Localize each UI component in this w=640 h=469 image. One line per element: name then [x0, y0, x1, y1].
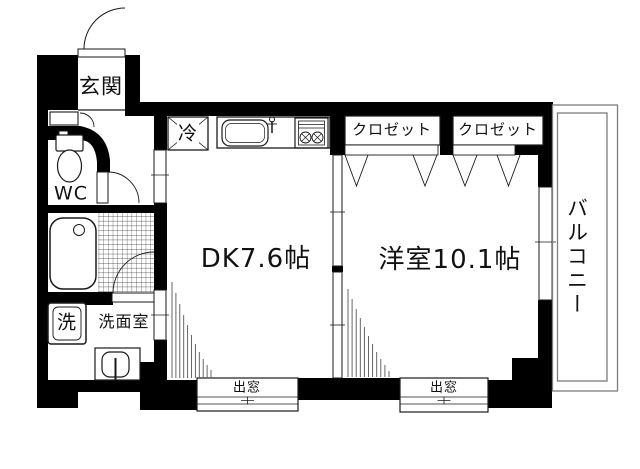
wall-south-mid — [298, 378, 400, 400]
room-label-washroom: 洗面室 — [98, 314, 149, 330]
bathroom-area — [50, 213, 154, 302]
floorplan-canvas: 玄関 WC 冷 クロゼット クロゼット DK7.6帖 洋室10.1帖 バルコニー… — [0, 0, 640, 469]
wall-dk-west-upper — [154, 102, 167, 150]
window-icon-hall — [154, 150, 166, 203]
toilet-icon — [58, 150, 82, 182]
room-label-western-room: 洋室10.1帖 — [379, 247, 522, 273]
wall-partition-joint — [332, 266, 343, 272]
closet-left-track — [345, 145, 438, 155]
window-icon-balcony — [539, 187, 552, 300]
wall-topleft-block — [37, 55, 78, 110]
closet-right-track — [453, 145, 515, 155]
bathtub-icon — [50, 218, 96, 289]
room-label-balcony: バルコニー — [566, 197, 587, 317]
toilet-tank — [56, 135, 83, 151]
floorplan-drawing — [0, 0, 640, 469]
wc-door-leaf — [97, 172, 108, 203]
bay-window-left-label: 出窓 — [233, 382, 261, 395]
entrance-door-leaf — [78, 49, 125, 57]
shoe-cabinet-icon — [50, 112, 78, 125]
wall-kitchen-closet-pier — [330, 116, 345, 155]
room-label-wc: WC — [54, 185, 88, 204]
refrigerator-label: 冷 — [178, 125, 198, 144]
wall-closet-right-sill — [515, 145, 543, 155]
bathroom-door-leaf — [112, 293, 154, 302]
washing-machine-label: 洗 — [57, 314, 77, 333]
closet-left-label: クロゼット — [352, 123, 432, 138]
wall-south-block-left — [140, 380, 197, 410]
wall-sw-corner — [37, 392, 78, 408]
wall-chunk — [140, 362, 167, 382]
wall-top-band — [125, 102, 553, 116]
wall-entry-right — [125, 55, 140, 110]
room-label-dk: DK7.6帖 — [201, 246, 311, 272]
wall-dk-west-mid — [154, 203, 167, 290]
wall-right-lower — [538, 300, 553, 358]
wall-se-corner — [512, 358, 552, 408]
wall-south-right — [488, 380, 512, 408]
wall-wc-bath-divider — [37, 205, 167, 213]
wall-closet-divider — [440, 116, 453, 155]
room-label-entrance: 玄関 — [79, 77, 123, 98]
partition-panel-upper — [333, 155, 342, 266]
closet-right-label: クロゼット — [458, 123, 538, 138]
bay-window-right-label: 出窓 — [430, 382, 458, 395]
bathtub-drain — [74, 225, 85, 236]
